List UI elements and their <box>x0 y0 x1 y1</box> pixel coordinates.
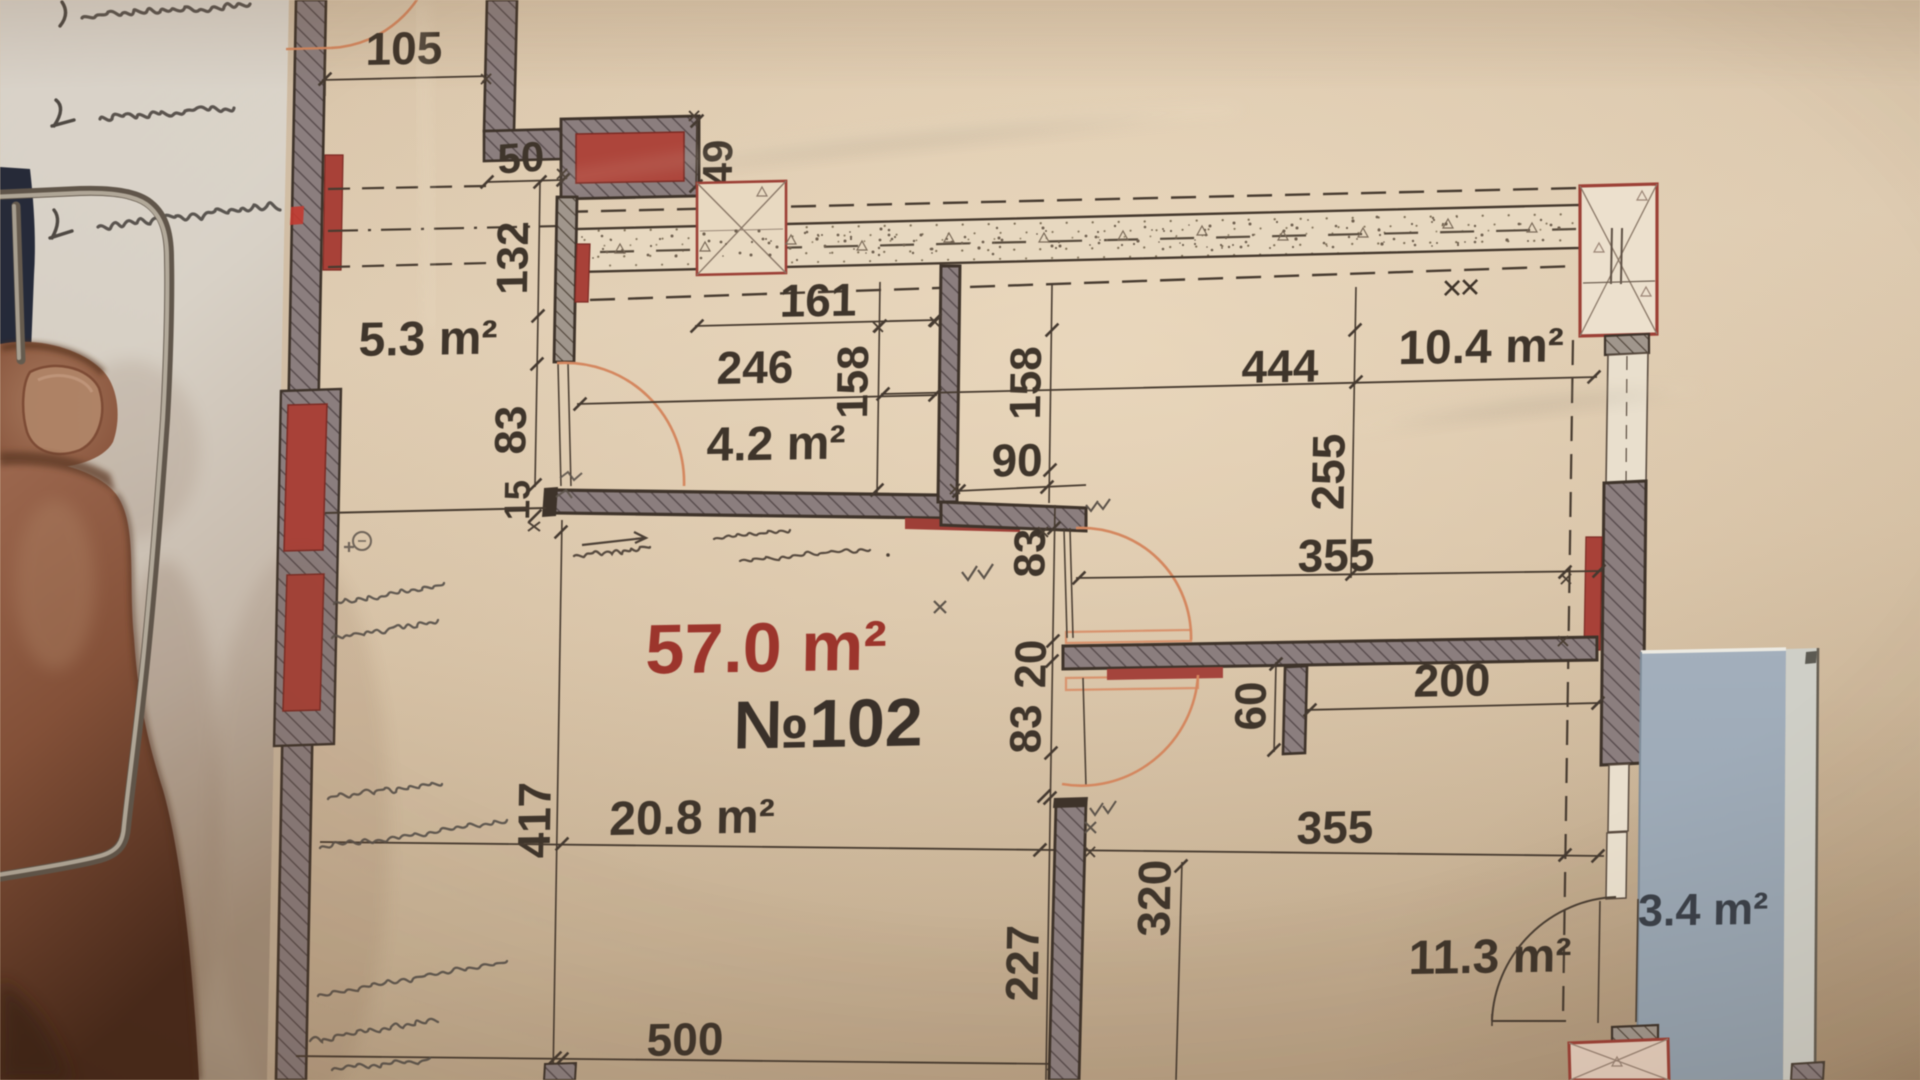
svg-text:90: 90 <box>991 434 1043 487</box>
svg-text:№102: №102 <box>733 684 924 763</box>
svg-text:50: 50 <box>497 133 545 183</box>
svg-text:161: 161 <box>779 274 857 327</box>
svg-text:444: 444 <box>1241 340 1319 393</box>
svg-text:355: 355 <box>1297 529 1375 582</box>
svg-text:4.2 m²: 4.2 m² <box>706 416 846 471</box>
svg-text:15: 15 <box>496 480 538 521</box>
svg-text:132: 132 <box>488 221 538 295</box>
svg-text:355: 355 <box>1296 801 1374 854</box>
svg-text:60: 60 <box>1226 681 1276 731</box>
svg-text:158: 158 <box>1001 346 1051 420</box>
svg-text:10.4 m²: 10.4 m² <box>1398 319 1564 375</box>
svg-text:255: 255 <box>1301 433 1354 511</box>
svg-text:83: 83 <box>1001 704 1051 754</box>
svg-text:57.0 m²: 57.0 m² <box>645 606 888 688</box>
svg-text:158: 158 <box>828 345 878 419</box>
svg-text:200: 200 <box>1413 654 1491 707</box>
svg-text:20.8 m²: 20.8 m² <box>609 790 775 846</box>
svg-text:83: 83 <box>486 405 536 455</box>
svg-text:417: 417 <box>508 781 561 859</box>
svg-text:227: 227 <box>996 924 1049 1002</box>
svg-text:500: 500 <box>646 1013 724 1066</box>
svg-text:20: 20 <box>1006 639 1056 689</box>
svg-text:11.3 m²: 11.3 m² <box>1408 929 1572 985</box>
svg-text:3.4 m²: 3.4 m² <box>1638 883 1769 936</box>
svg-text:320: 320 <box>1127 859 1180 937</box>
svg-text:246: 246 <box>716 341 794 394</box>
